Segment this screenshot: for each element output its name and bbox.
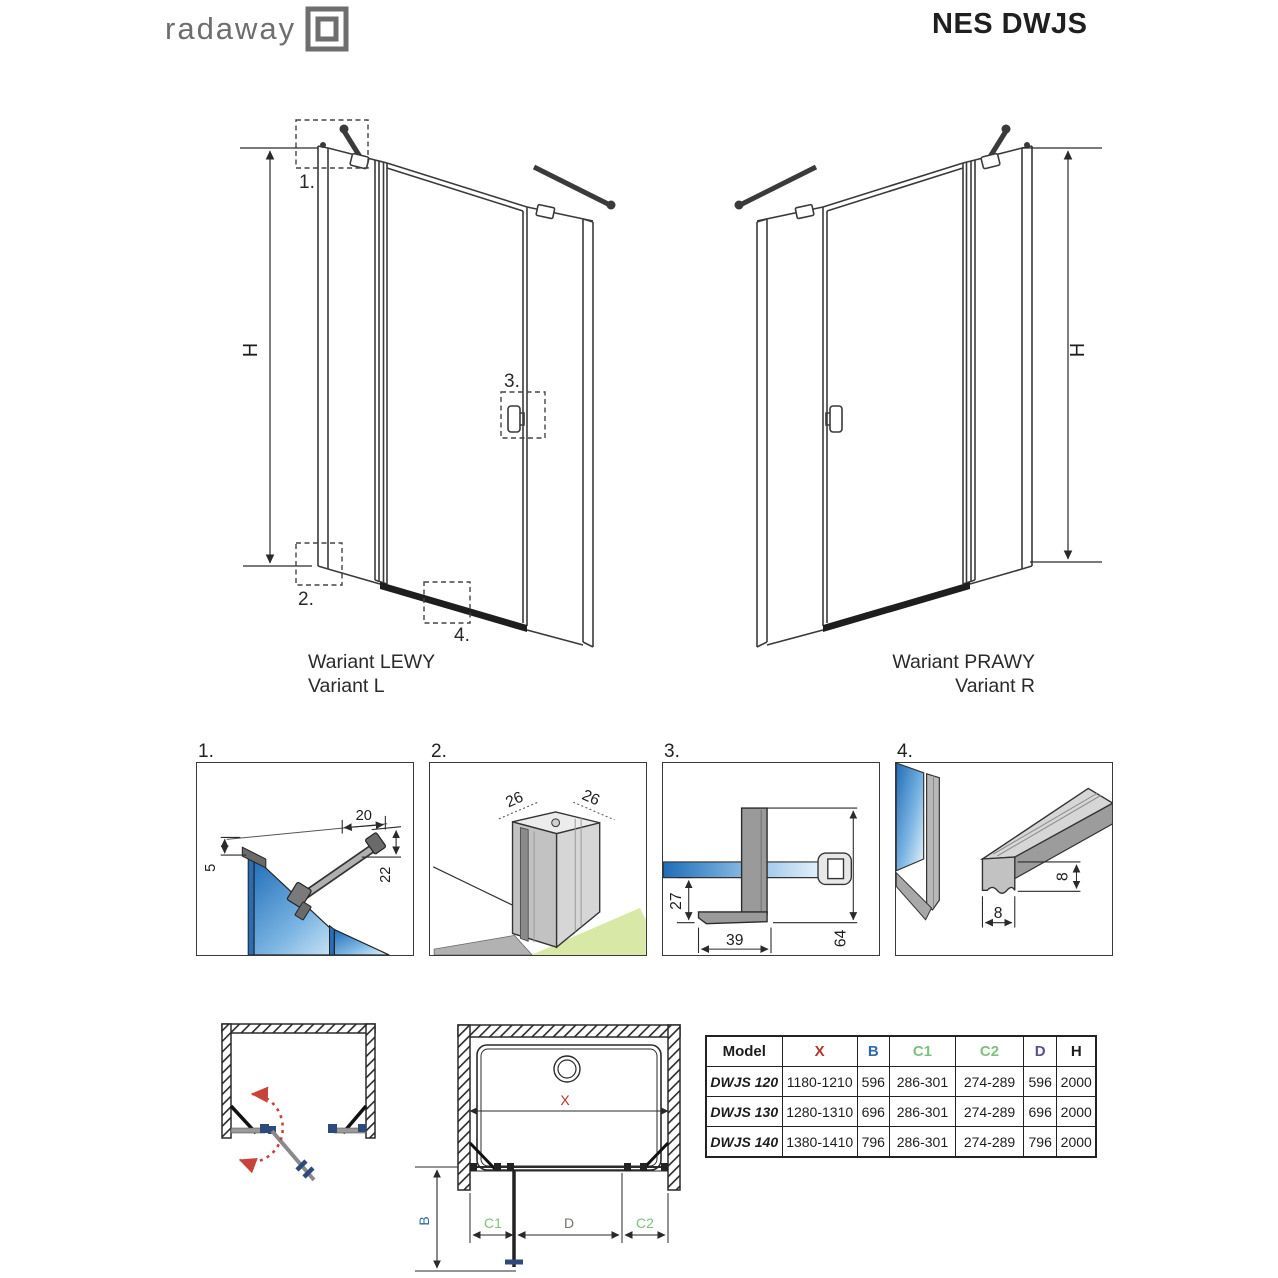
detail-4: 4. 8 8 <box>895 742 1114 956</box>
cell-d: 596 <box>1023 1067 1057 1097</box>
callout-3: 3. <box>504 371 520 392</box>
detail-2-label: 2. <box>429 742 648 762</box>
page-root: radaway NES DWJS H 1. 2. 3. 4. Wariant L… <box>0 0 1278 1278</box>
col-model: Model <box>706 1036 782 1067</box>
cell-b: 596 <box>857 1067 889 1097</box>
detail-2-dim-26-left: 26 <box>503 789 526 812</box>
brand-logo: radaway <box>165 5 350 53</box>
detail-1: 1. <box>196 742 415 956</box>
brand-logo-text: radaway <box>165 11 296 47</box>
cell-c2: 274-289 <box>956 1097 1024 1127</box>
detail-3-dim-27: 27 <box>668 892 685 909</box>
caption-left-pl: Wariant LEWY <box>308 651 435 673</box>
col-d: D <box>1023 1036 1057 1067</box>
detail-4-drawing: 8 8 <box>896 763 1112 955</box>
detail-3: 3. 27 39 64 <box>662 742 881 956</box>
cell-h: 2000 <box>1057 1097 1096 1127</box>
detail-3-dim-64: 64 <box>832 929 849 947</box>
caption-left-en: Variant L <box>308 675 385 697</box>
drawing-variant-left: H 1. 2. 3. 4. Wariant LEWY Variant L <box>240 110 650 710</box>
cell-h: 2000 <box>1057 1067 1096 1097</box>
dim-h-left: H <box>240 343 262 357</box>
caption-right-pl: Wariant PRAWY <box>892 651 1035 673</box>
cell-h: 2000 <box>1057 1127 1096 1158</box>
detail-2-box: 26 26 <box>429 762 647 956</box>
cell-x: 1280-1310 <box>782 1097 857 1127</box>
cell-x: 1380-1410 <box>782 1127 857 1158</box>
cell-d: 696 <box>1023 1097 1057 1127</box>
col-h: H <box>1057 1036 1096 1067</box>
caption-right-en: Variant R <box>955 675 1035 697</box>
detail-1-dim-5: 5 <box>203 864 219 872</box>
col-c1: C1 <box>889 1036 955 1067</box>
cell-model: DWJS 140 <box>706 1127 782 1158</box>
col-c2: C2 <box>956 1036 1024 1067</box>
detail-4-box: 8 8 <box>895 762 1113 956</box>
callout-2: 2. <box>298 589 314 610</box>
plan-swing-diagram <box>200 1020 395 1245</box>
table-header-row: Model X B C1 C2 D H <box>706 1036 1096 1067</box>
plan-dim-x: X <box>560 1092 570 1108</box>
cell-d: 796 <box>1023 1127 1057 1158</box>
cell-c2: 274-289 <box>956 1127 1024 1158</box>
plan-dim-b: B <box>416 1216 432 1225</box>
detail-4-label: 4. <box>895 742 1114 762</box>
callout-1: 1. <box>299 172 315 193</box>
spec-table-wrap: Model X B C1 C2 D H DWJS 120 1180-1210 5… <box>705 1035 1097 1158</box>
detail-3-drawing: 27 39 64 <box>663 763 879 955</box>
cell-c1: 286-301 <box>889 1127 955 1158</box>
plan-top-view: X B C1 D C2 <box>415 1015 700 1278</box>
logo-square-icon <box>304 5 350 53</box>
detail-3-box: 27 39 64 <box>662 762 880 956</box>
cell-b: 796 <box>857 1127 889 1158</box>
detail-1-dim-20: 20 <box>356 808 372 824</box>
col-x: X <box>782 1036 857 1067</box>
callout-4: 4. <box>454 625 470 646</box>
spec-table: Model X B C1 C2 D H DWJS 120 1180-1210 5… <box>705 1035 1097 1158</box>
table-row: DWJS 140 1380-1410 796 286-301 274-289 7… <box>706 1127 1096 1158</box>
table-row: DWJS 120 1180-1210 596 286-301 274-289 5… <box>706 1067 1096 1097</box>
detail-2: 2. 26 26 <box>429 742 648 956</box>
cell-b: 696 <box>857 1097 889 1127</box>
cell-c1: 286-301 <box>889 1067 955 1097</box>
detail-2-drawing: 26 26 <box>430 763 646 955</box>
detail-3-dim-39: 39 <box>726 932 743 949</box>
page-title: NES DWJS <box>932 8 1087 41</box>
cell-model: DWJS 120 <box>706 1067 782 1097</box>
detail-1-box: 20 5 22 <box>196 762 414 956</box>
detail-1-dim-22: 22 <box>378 867 394 883</box>
cell-c2: 274-289 <box>956 1067 1024 1097</box>
plan-dim-d: D <box>564 1215 574 1231</box>
dim-h-right: H <box>1067 343 1089 357</box>
cell-x: 1180-1210 <box>782 1067 857 1097</box>
detail-4-dim-8w: 8 <box>994 905 1003 922</box>
detail-3-label: 3. <box>662 742 881 762</box>
detail-1-label: 1. <box>196 742 415 762</box>
plan-dim-c2: C2 <box>636 1215 654 1231</box>
drawing-variant-right: H Wariant PRAWY Variant R <box>690 110 1110 710</box>
cell-c1: 286-301 <box>889 1097 955 1127</box>
detail-4-dim-8h: 8 <box>1055 872 1072 881</box>
col-b: B <box>857 1036 889 1067</box>
plan-dim-c1: C1 <box>484 1215 502 1231</box>
detail-1-drawing: 20 5 22 <box>197 763 413 955</box>
table-row: DWJS 130 1280-1310 696 286-301 274-289 6… <box>706 1097 1096 1127</box>
cell-model: DWJS 130 <box>706 1097 782 1127</box>
